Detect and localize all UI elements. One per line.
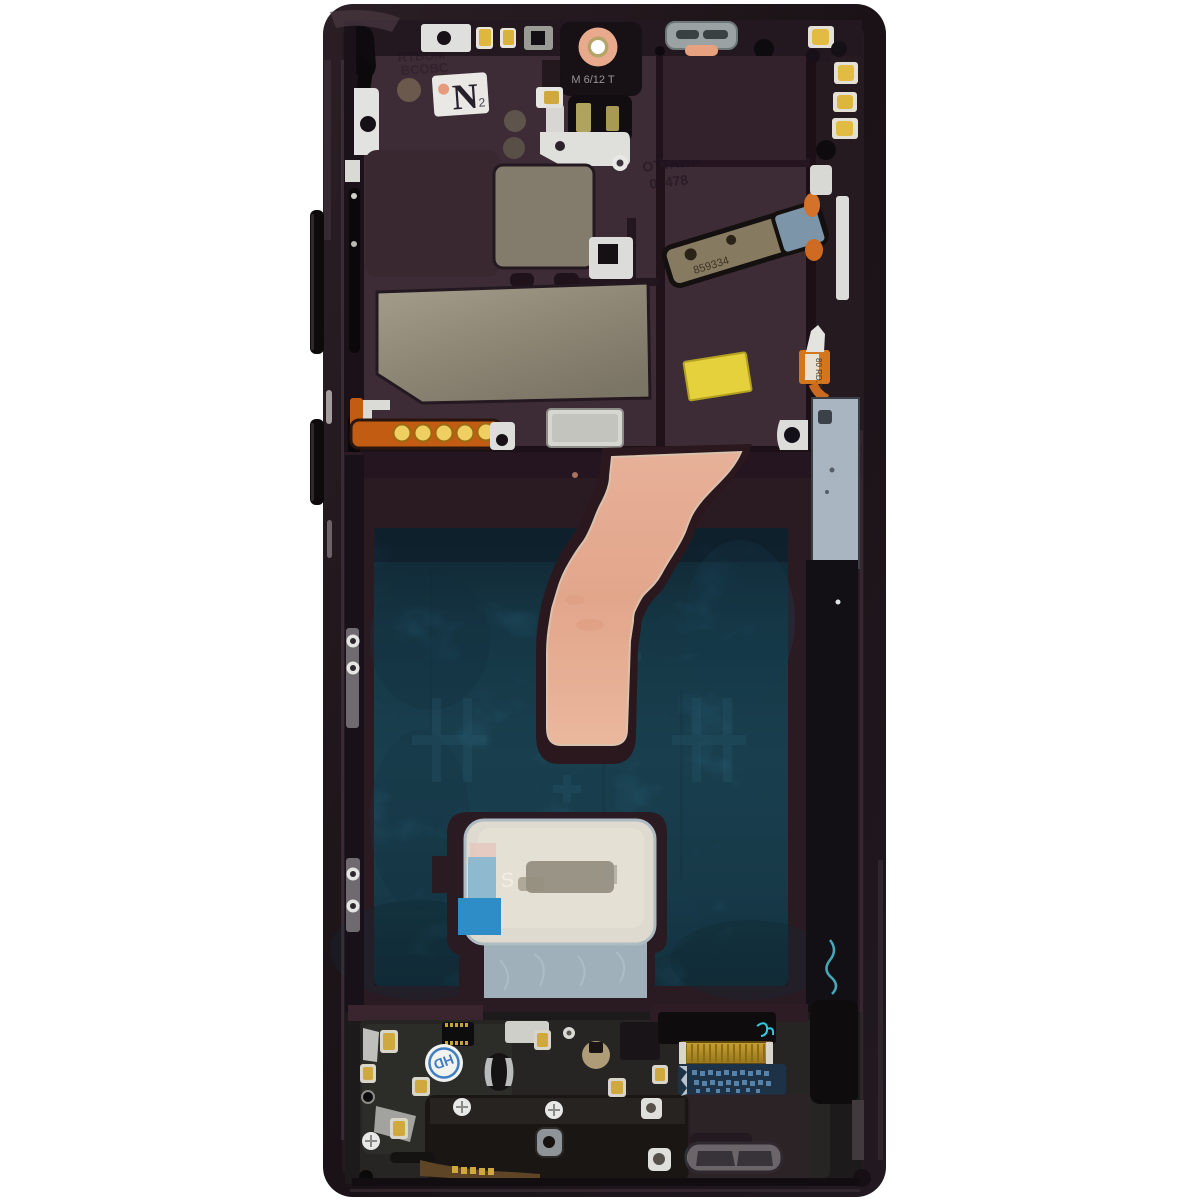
svg-text:M 6/12 T: M 6/12 T [571,74,614,86]
svg-text:2: 2 [478,95,486,109]
svg-text:N: N [451,76,480,118]
